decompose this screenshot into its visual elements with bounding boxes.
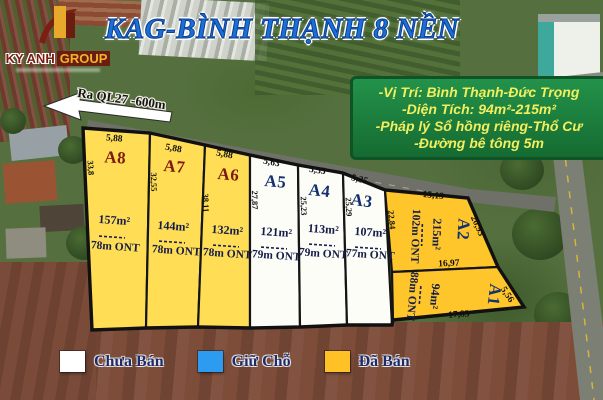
logo-name-primary: KY ANH [6, 51, 55, 66]
dim-a6-side: 38,11 [201, 193, 212, 212]
dim-a5-side: 27,87 [250, 190, 260, 210]
logo-name: KY ANHGROUP [2, 51, 114, 66]
info-road: -Đường bê tông 5m [359, 135, 599, 152]
dim-a1-bottom: 17,83 [448, 309, 470, 320]
legend-swatch-blue [198, 351, 223, 372]
info-box: -Vị Trí: Bình Thạnh-Đức Trọng -Diện Tích… [350, 76, 603, 160]
real-estate-ad: Ra QL27 -600m A8 A7 A6 A5 A4 A3 A2 A1 15… [0, 0, 603, 400]
legend: Chưa Bán Giữ Chỗ Đã Bán [60, 351, 410, 372]
plot-a2-area: 215m² [429, 218, 444, 250]
plot-a8-label: A8 [104, 147, 127, 167]
legend-swatch-yellow [325, 351, 350, 372]
dim-a2-bottom: 16,97 [438, 258, 460, 269]
legend-swatch-white [60, 351, 85, 372]
dim-a2-side: 22,84 [386, 210, 398, 231]
page-title: KAG-BÌNH THẠNH 8 NỀN [72, 13, 492, 46]
plot-a4-area: 113m² [307, 221, 339, 237]
dim-a8-side: 33,8 [85, 160, 96, 176]
plot-a7-area: 144m² [157, 218, 190, 234]
plot-a3-area: 107m² [354, 224, 387, 240]
info-area: -Diện Tích: 94m²-215m² [359, 101, 599, 118]
dim-a4-side: 25,23 [299, 196, 310, 215]
legend-label: Giữ Chỗ [232, 353, 291, 371]
legend-item-sold: Đã Bán [325, 351, 410, 372]
plot-a2-ont: 102m ONT [408, 209, 422, 264]
logo-tagline [16, 68, 100, 72]
legend-label: Đã Bán [359, 353, 410, 371]
plot-a8-area: 157m² [98, 212, 131, 228]
dim-a3-side: 25,29 [344, 197, 355, 217]
info-location: -Vị Trí: Bình Thạnh-Đức Trọng [359, 84, 599, 101]
plot-a1-area: 94m² [427, 283, 443, 310]
plot-a6-label: A6 [217, 164, 240, 185]
legend-item-reserved: Giữ Chỗ [198, 351, 291, 372]
logo-name-secondary: GROUP [57, 51, 111, 66]
legend-item-available: Chưa Bán [60, 351, 164, 372]
legend-label: Chưa Bán [94, 353, 164, 371]
info-legal: -Pháp lý Sổ hồng riêng-Thổ Cư [359, 118, 599, 135]
plot-a7-label: A7 [163, 156, 186, 177]
plot-a6-area: 132m² [211, 222, 244, 238]
plot-a4-label: A4 [308, 180, 332, 201]
dim-a8-top: 5,88 [105, 133, 123, 144]
plot-a5-area: 121m² [260, 224, 293, 240]
plot-a5-label: A5 [264, 171, 287, 192]
dim-a7-side: 32,55 [149, 172, 159, 191]
